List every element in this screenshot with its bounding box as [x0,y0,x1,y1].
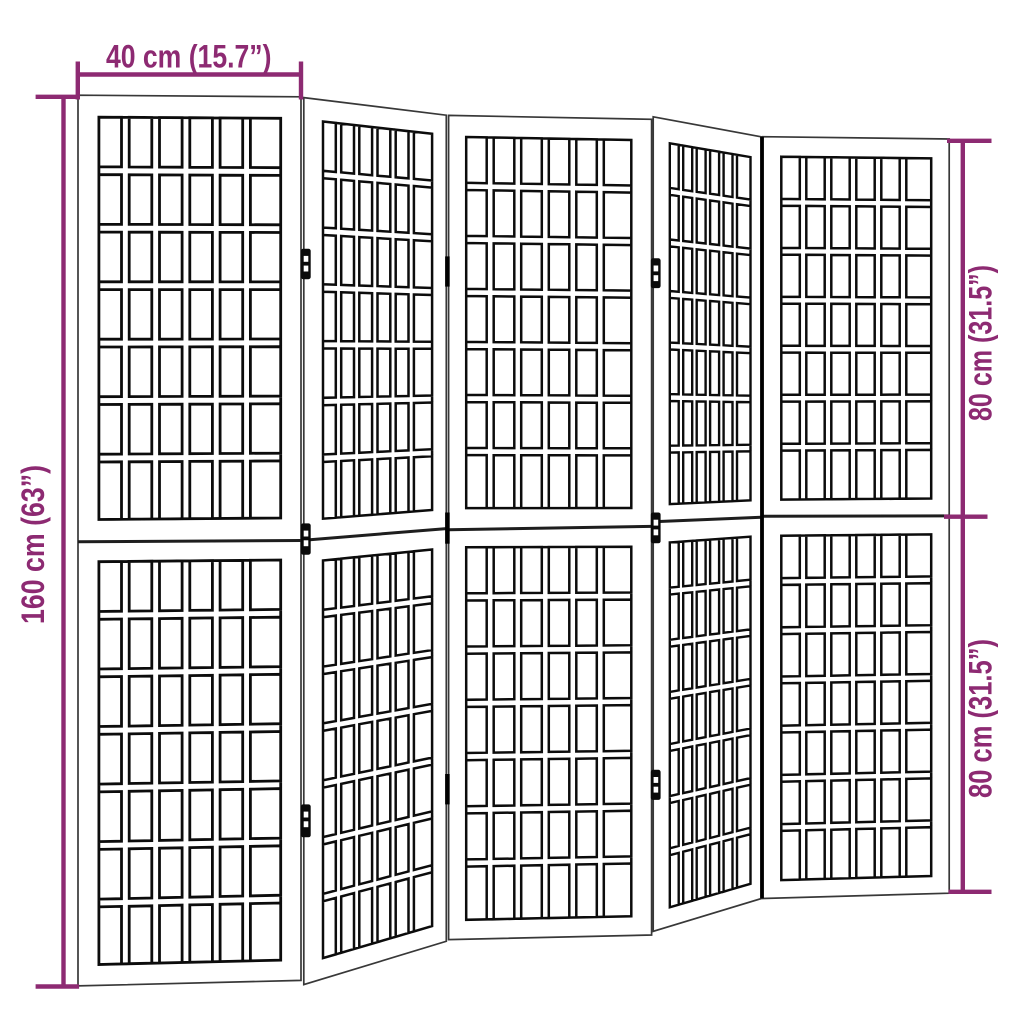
svg-text:40 cm (15.7”): 40 cm (15.7”) [106,39,272,75]
svg-text:160 cm (63”): 160 cm (63”) [15,465,51,624]
svg-text:80 cm (31.5”): 80 cm (31.5”) [963,265,999,421]
svg-text:80 cm (31.5”): 80 cm (31.5”) [963,639,999,798]
